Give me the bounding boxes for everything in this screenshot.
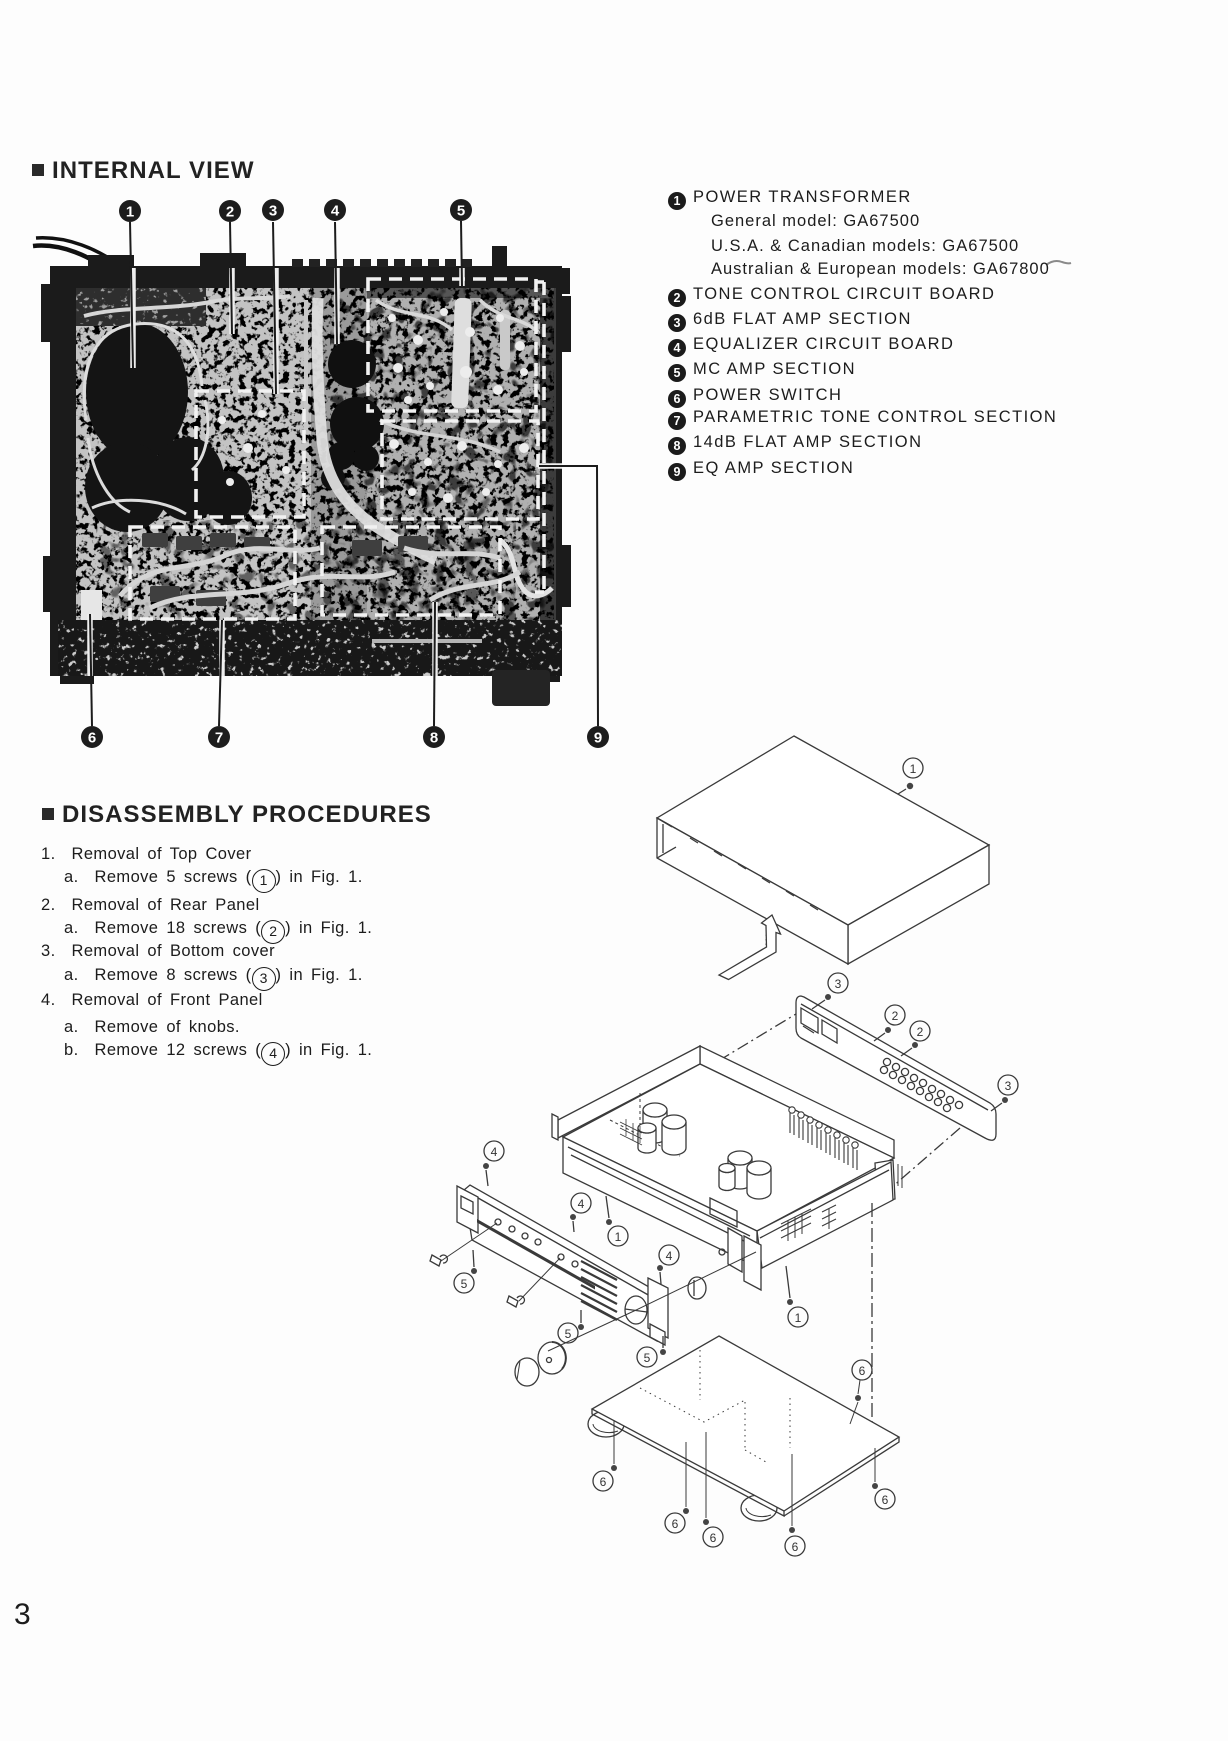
svg-text:6: 6 [882,1493,889,1507]
svg-text:4: 4 [331,203,340,220]
svg-text:6: 6 [600,1475,607,1489]
svg-text:6: 6 [859,1364,866,1378]
svg-text:5: 5 [461,1277,468,1291]
svg-text:1: 1 [615,1230,622,1244]
svg-text:4: 4 [666,1249,673,1263]
svg-text:2: 2 [226,204,234,221]
svg-text:3: 3 [1005,1079,1012,1093]
svg-text:9: 9 [594,730,602,747]
svg-text:4: 4 [491,1145,498,1159]
svg-text:6: 6 [710,1531,717,1545]
svg-text:4: 4 [578,1197,585,1211]
svg-text:5: 5 [644,1351,651,1365]
svg-text:3: 3 [835,977,842,991]
svg-text:3: 3 [269,203,277,220]
svg-text:5: 5 [565,1327,572,1341]
svg-text:6: 6 [792,1540,799,1554]
svg-text:1: 1 [795,1311,802,1325]
svg-text:1: 1 [126,204,134,221]
svg-text:2: 2 [892,1009,899,1023]
svg-text:2: 2 [917,1025,924,1039]
svg-text:5: 5 [457,203,465,220]
svg-text:1: 1 [910,762,917,776]
svg-text:7: 7 [215,730,223,747]
svg-text:6: 6 [672,1517,679,1531]
svg-text:6: 6 [88,730,96,747]
svg-text:8: 8 [430,730,438,747]
